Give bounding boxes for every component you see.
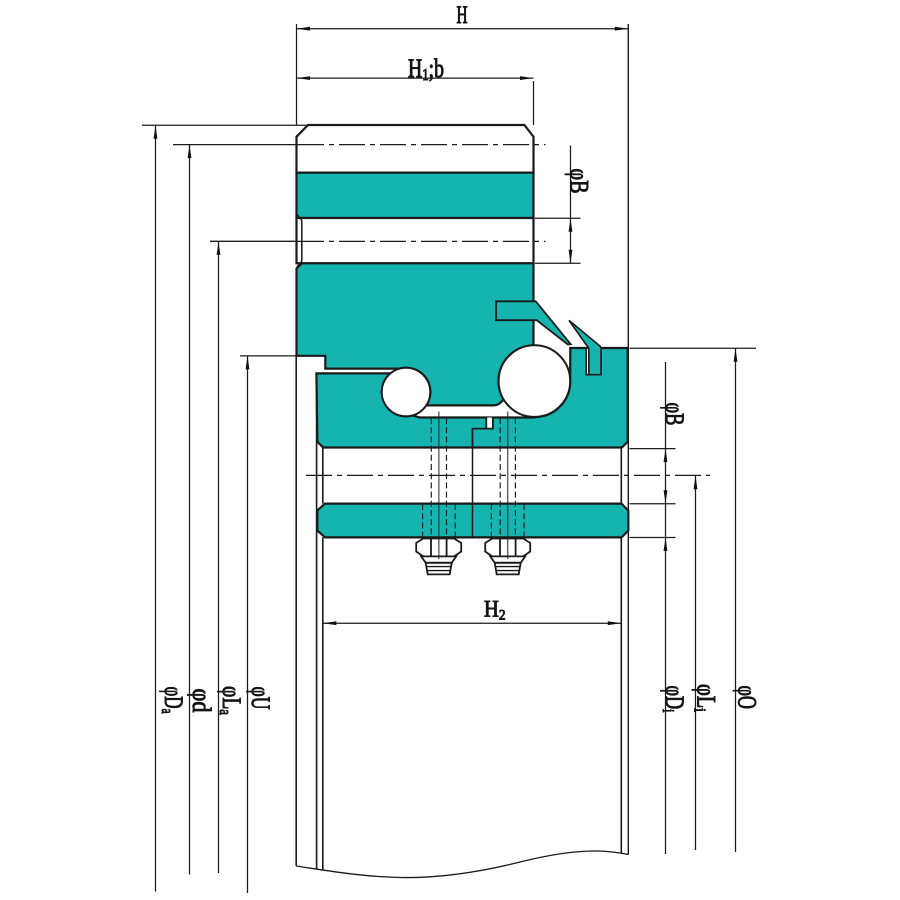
svg-text:φU: φU	[246, 687, 275, 710]
svg-text:φLa: φLa	[216, 686, 246, 715]
svg-text:φDi: φDi	[659, 686, 689, 713]
svg-text:φB: φB	[660, 403, 689, 426]
svg-text:φd: φd	[187, 689, 216, 713]
svg-text:φDa: φDa	[158, 687, 188, 714]
svg-text:φB: φB	[565, 169, 594, 194]
svg-text:φLi: φLi	[691, 684, 721, 712]
svg-text:φO: φO	[733, 686, 762, 710]
svg-text:H1;b: H1;b	[408, 54, 444, 84]
svg-text:H2: H2	[484, 597, 506, 624]
svg-text:H: H	[457, 2, 468, 29]
